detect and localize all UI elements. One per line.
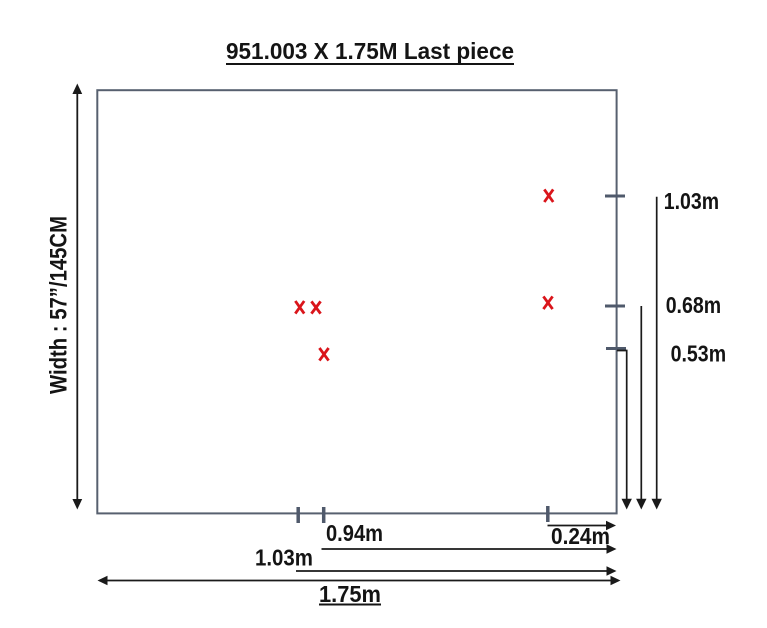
svg-text:0.68m: 0.68m xyxy=(666,292,721,318)
svg-text:951.003 X 1.75M Last piece: 951.003 X 1.75M Last piece xyxy=(226,38,514,64)
svg-text:Width : 57”/145CM: Width : 57”/145CM xyxy=(45,216,72,394)
svg-text:1.03m: 1.03m xyxy=(664,188,719,214)
svg-text:0.24m: 0.24m xyxy=(551,523,610,549)
svg-text:0.53m: 0.53m xyxy=(671,341,727,367)
svg-text:1.03m: 1.03m xyxy=(255,545,313,571)
svg-text:1.75m: 1.75m xyxy=(319,581,381,607)
svg-text:0.94m: 0.94m xyxy=(326,520,383,546)
